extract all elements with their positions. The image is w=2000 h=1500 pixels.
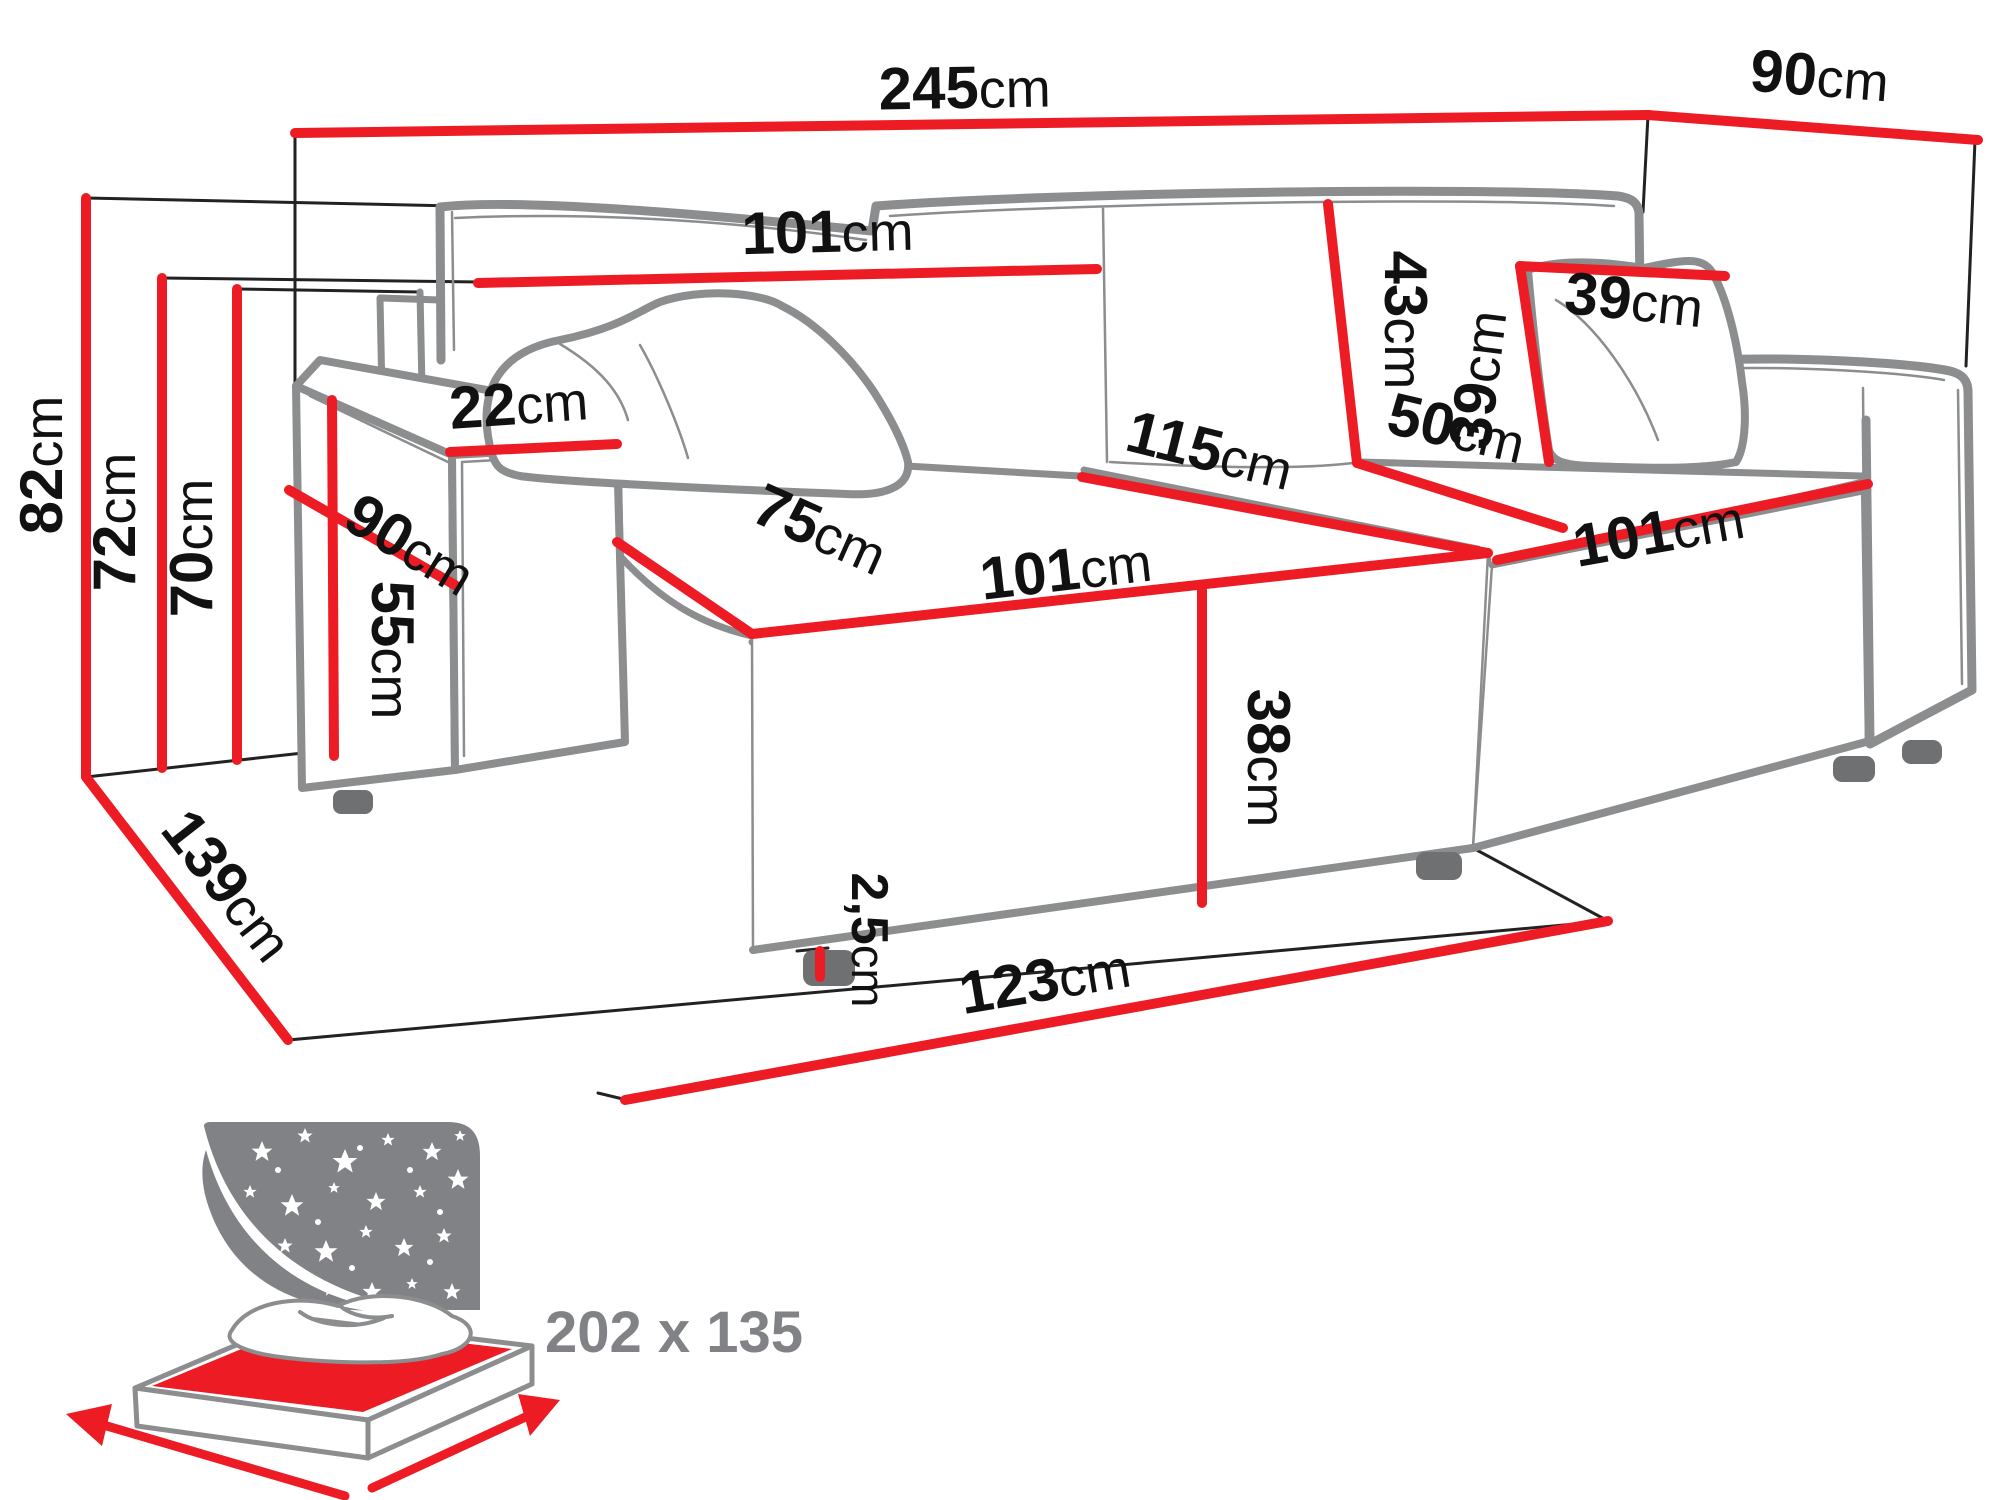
leg-right-armrest-back [1902,740,1942,764]
label-245: 245cm [878,53,1051,123]
leg-chaise [1416,852,1462,880]
leg-right-armrest-front [1833,756,1875,782]
dimline-101-backrest [478,269,1097,283]
label-70: 70cm [158,479,225,618]
label-72: 72cm [81,453,148,592]
label-43: 43cm [1372,251,1439,390]
label-101-backrest: 101cm [741,196,915,267]
bed-arrow-length-head [518,1394,560,1436]
bed-icon [66,1296,560,1496]
height-connector-72 [162,278,480,282]
bed-size-label: 202 x 135 [545,1300,803,1365]
sofa-dimension-drawing: 245cm 90cm 82cm 72cm 70cm 139cm 101cm 22… [0,0,2000,1500]
dimline-90-top [1648,115,1978,140]
height-connector-82 [86,198,455,206]
dimline-43 [1328,204,1357,463]
duvet-pillows [230,1296,471,1362]
leg-left-armrest [333,790,373,814]
dimline-50 [1357,463,1563,528]
extension-line-mid [1643,115,1648,212]
label-22: 22cm [447,365,590,442]
left-armrest-front-face [452,446,625,770]
dimline-75 [617,542,752,634]
height-connector-70 [237,289,420,292]
extension-line-right [1966,140,1975,366]
label-2-5: 2,5cm [840,873,898,1008]
label-38: 38cm [1235,689,1302,828]
bed-arrow-width-head [66,1404,112,1446]
label-90-top: 90cm [1748,37,1892,115]
dimension-diagram: 245cm 90cm 82cm 72cm 70cm 139cm 101cm 22… [0,0,2000,1500]
label-82: 82cm [8,396,75,535]
label-55: 55cm [359,581,426,720]
dimline-55 [332,400,334,756]
sleeping-area-icon: 202 x 135 [66,1122,803,1496]
